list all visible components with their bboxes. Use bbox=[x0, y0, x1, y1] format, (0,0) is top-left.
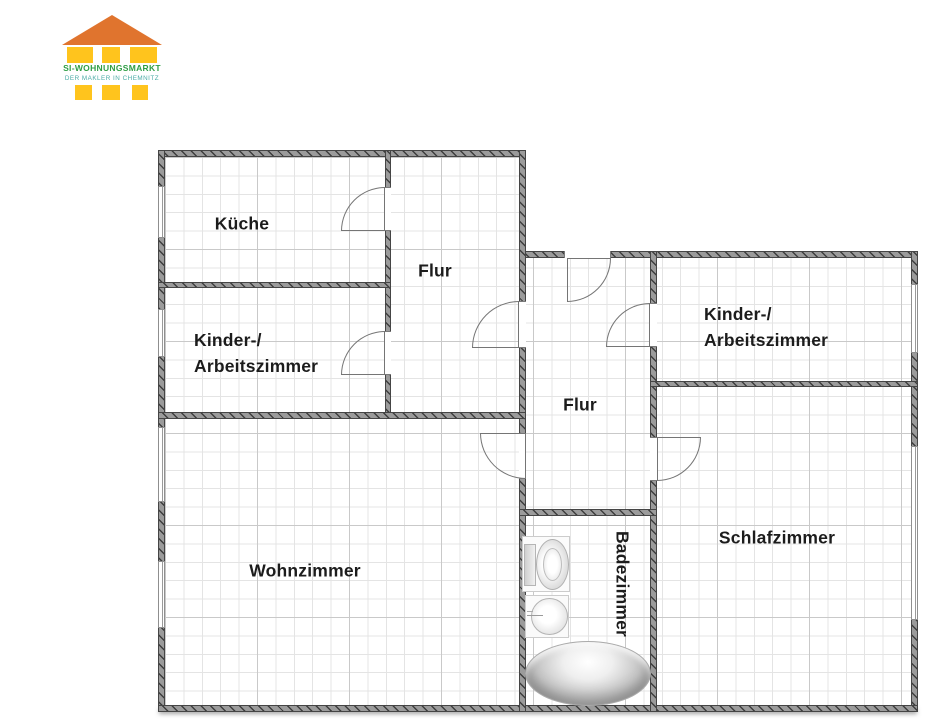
door-opening-kinder-right bbox=[650, 303, 657, 347]
logo-house-block bbox=[132, 85, 148, 100]
wall-top-left-block bbox=[158, 150, 526, 157]
logo-brand-text: SI-WOHNUNGSMARKT bbox=[56, 63, 168, 73]
room-label-flur-middle: Flur bbox=[563, 395, 597, 416]
wall-bottom-exterior bbox=[158, 705, 918, 712]
toilet bbox=[522, 536, 570, 592]
door-opening-entrance bbox=[564, 251, 611, 258]
logo-house-block bbox=[130, 47, 157, 63]
room-label-kinder-right-line2: Arbeitszimmer bbox=[704, 327, 828, 353]
toilet-bowl bbox=[536, 539, 569, 590]
company-logo: SI-WOHNUNGSMARKT DER MAKLER IN CHEMNITZ bbox=[62, 15, 162, 105]
sink-basin bbox=[531, 598, 568, 635]
wall-kinder-schlafzimmer bbox=[650, 381, 918, 387]
floor-plan: Küche Flur Kinder-/ Arbeitszimmer Wohnzi… bbox=[158, 150, 918, 712]
logo-roof-icon bbox=[62, 15, 162, 45]
window-kinder-left bbox=[158, 309, 165, 357]
window-kinder-right bbox=[911, 284, 918, 353]
room-label-kinder-left: Kinder-/ Arbeitszimmer bbox=[194, 327, 318, 379]
logo-house-block bbox=[102, 47, 120, 63]
room-label-kinder-left-line2: Arbeitszimmer bbox=[194, 353, 318, 379]
logo-house-block bbox=[67, 47, 93, 63]
wall-badezimmer-top bbox=[519, 509, 657, 516]
room-label-kinder-right: Kinder-/ Arbeitszimmer bbox=[704, 301, 828, 353]
door-opening-kinder-left bbox=[385, 331, 391, 375]
page: { "logo": { "brand": "SI-WOHNUNGSMARKT",… bbox=[0, 0, 926, 720]
outside-area-mask bbox=[526, 150, 918, 251]
window-wohnzimmer-1 bbox=[158, 427, 165, 502]
wall-wohnzimmer-top bbox=[158, 412, 526, 419]
sink bbox=[525, 595, 569, 638]
window-wohnzimmer-2 bbox=[158, 561, 165, 628]
toilet-tank bbox=[524, 544, 536, 586]
logo-house-block bbox=[75, 85, 92, 100]
logo-house-block bbox=[102, 85, 120, 100]
window-schlafzimmer bbox=[911, 446, 918, 620]
door-opening-kueche bbox=[385, 187, 391, 231]
sink-tap bbox=[527, 615, 543, 616]
room-label-kinder-right-line1: Kinder-/ bbox=[704, 301, 828, 327]
room-label-schlafzimmer: Schlafzimmer bbox=[719, 528, 835, 549]
room-label-flur-left: Flur bbox=[418, 261, 452, 282]
door-opening-flur-flur bbox=[519, 301, 526, 348]
room-label-kueche: Küche bbox=[215, 214, 269, 235]
room-label-badezimmer: Badezimmer bbox=[612, 531, 633, 637]
bathtub bbox=[525, 641, 651, 706]
room-label-wohnzimmer: Wohnzimmer bbox=[249, 561, 361, 582]
window-kueche bbox=[158, 186, 165, 238]
wall-kueche-kinder bbox=[158, 282, 391, 288]
door-opening-schlafzimmer bbox=[650, 437, 657, 481]
sink-tap bbox=[527, 611, 533, 612]
logo-tagline-text: DER MAKLER IN CHEMNITZ bbox=[56, 75, 168, 82]
room-label-kinder-left-line1: Kinder-/ bbox=[194, 327, 318, 353]
